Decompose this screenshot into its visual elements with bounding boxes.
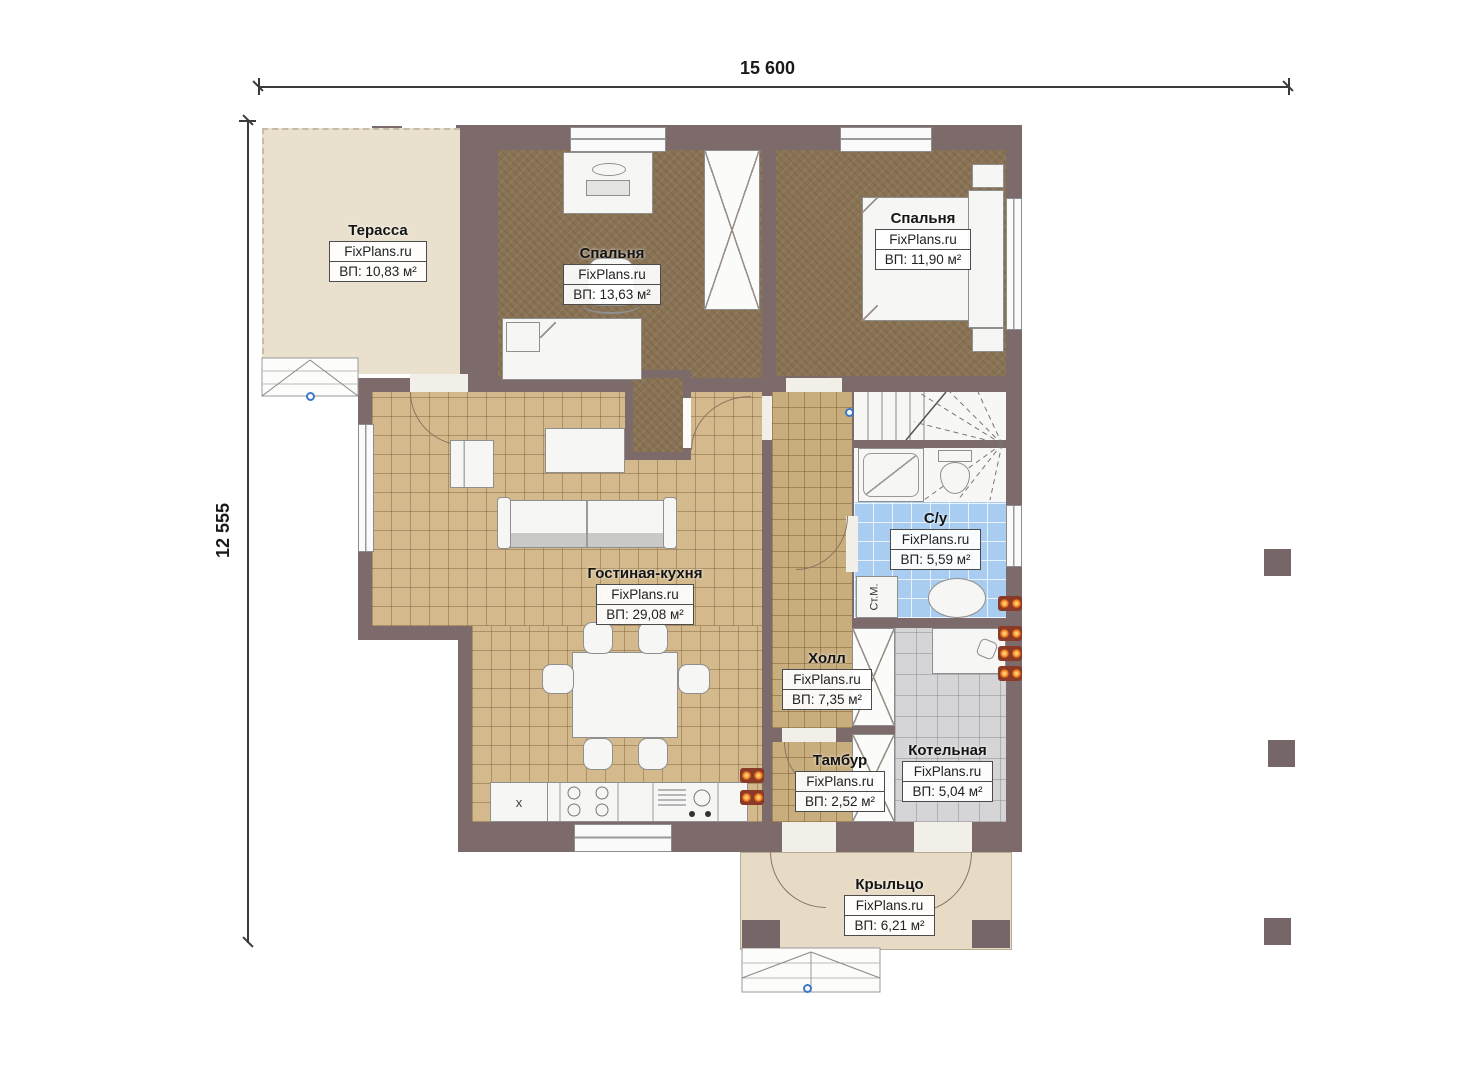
dining-chair	[542, 664, 574, 694]
room-area: ВП: 6,21 м²	[845, 915, 933, 935]
dining-chair	[583, 622, 613, 654]
radiator-icon	[998, 626, 1022, 641]
room-area: ВП: 10,83 м²	[330, 261, 426, 281]
pillow	[506, 322, 540, 352]
coffee-table	[545, 428, 625, 473]
room-name: С/у	[868, 510, 1003, 527]
sofa-armrest	[497, 497, 511, 549]
room-name: Спальня	[542, 245, 682, 262]
window	[574, 824, 672, 852]
watermark: FixPlans.ru	[796, 772, 884, 791]
washing-machine-label: Ст.М.	[869, 583, 881, 610]
room-name: Спальня	[853, 210, 993, 227]
room-name: Терасса	[308, 222, 448, 239]
watermark: FixPlans.ru	[564, 265, 660, 284]
blanket-fold	[862, 305, 878, 321]
room-label-terrace: Терасса FixPlans.ru ВП: 10,83 м²	[308, 222, 448, 282]
door-opening	[846, 516, 858, 572]
room-name: Крыльцо	[822, 876, 957, 893]
dimension-ext	[239, 120, 256, 122]
stove-and-sink	[490, 782, 748, 822]
dining-chair	[583, 738, 613, 770]
floor-plan: 15 600 12 555	[0, 0, 1474, 1080]
wardrobe-icon	[704, 150, 760, 310]
watermark: FixPlans.ru	[845, 896, 933, 915]
room-area: ВП: 5,04 м²	[903, 781, 991, 801]
radiator-icon	[998, 666, 1022, 681]
door-opening	[683, 398, 691, 448]
room-bedroom1-floor-ext	[633, 378, 683, 452]
door-opening	[914, 822, 972, 852]
desk-item	[586, 180, 630, 196]
nightstand	[972, 328, 1004, 352]
room-area: ВП: 5,59 м²	[891, 549, 979, 569]
room-label-bedroom1: Спальня FixPlans.ru ВП: 13,63 м²	[542, 245, 682, 305]
watermark: FixPlans.ru	[903, 762, 991, 781]
room-name: Гостиная-кухня	[565, 565, 725, 582]
room-label-boiler: Котельная FixPlans.ru ВП: 5,04 м²	[880, 742, 1015, 802]
shower-tray	[858, 448, 924, 502]
door-opening	[782, 728, 836, 742]
room-name: Холл	[762, 650, 892, 667]
nightstand	[972, 164, 1004, 188]
site-column	[1268, 740, 1295, 767]
room-label-bedroom2: Спальня FixPlans.ru ВП: 11,90 м²	[853, 210, 993, 270]
porch-column	[742, 920, 780, 948]
dimension-top-label: 15 600	[740, 58, 795, 79]
radiator-icon	[740, 768, 764, 783]
dining-chair	[678, 664, 710, 694]
dimension-ext	[258, 78, 260, 95]
window	[1006, 505, 1022, 567]
blanket-fold	[540, 322, 556, 338]
door-opening	[410, 374, 468, 392]
dimension-left-label: 12 555	[213, 503, 234, 558]
passage-opening	[762, 396, 772, 440]
watermark: FixPlans.ru	[597, 585, 693, 604]
room-label-bathroom: С/у FixPlans.ru ВП: 5,59 м²	[868, 510, 1003, 570]
room-area: ВП: 2,52 м²	[796, 791, 884, 811]
window	[840, 127, 932, 152]
room-area: ВП: 13,63 м²	[564, 284, 660, 304]
site-column	[1264, 549, 1291, 576]
dining-table	[572, 652, 678, 738]
survey-dot	[306, 392, 315, 401]
radiator-icon	[740, 790, 764, 805]
watermark: FixPlans.ru	[876, 230, 971, 249]
radiator-icon	[998, 646, 1022, 661]
sofa	[503, 500, 671, 548]
dining-chair	[638, 738, 668, 770]
room-area: ВП: 29,08 м²	[597, 604, 693, 624]
window	[358, 424, 374, 552]
dining-chair	[638, 622, 668, 654]
dimension-line-top	[258, 86, 1288, 88]
window	[1006, 198, 1022, 330]
door-opening	[786, 378, 842, 392]
room-label-hall: Холл FixPlans.ru ВП: 7,35 м²	[762, 650, 892, 710]
room-name: Котельная	[880, 742, 1015, 759]
washing-machine: Ст.М.	[856, 576, 898, 618]
window	[570, 127, 666, 152]
porch-column	[972, 920, 1010, 948]
room-area: ВП: 7,35 м²	[783, 689, 871, 709]
dimension-line-left	[247, 120, 249, 943]
survey-dot	[803, 984, 812, 993]
survey-dot	[845, 408, 854, 417]
side-table	[450, 440, 494, 488]
desk-lamp	[592, 163, 626, 176]
watermark: FixPlans.ru	[330, 242, 426, 261]
dimension-ext	[1288, 78, 1290, 95]
watermark: FixPlans.ru	[783, 670, 871, 689]
door-opening	[782, 822, 836, 852]
watermark: FixPlans.ru	[891, 530, 979, 549]
bathroom-sink	[928, 578, 986, 618]
room-label-porch: Крыльцо FixPlans.ru ВП: 6,21 м²	[822, 876, 957, 936]
sofa-armrest	[663, 497, 677, 549]
room-area: ВП: 11,90 м²	[876, 249, 971, 269]
site-column	[1264, 918, 1291, 945]
room-label-living: Гостиная-кухня FixPlans.ru ВП: 29,08 м²	[565, 565, 725, 625]
toilet-tank	[938, 450, 972, 462]
radiator-icon	[998, 596, 1022, 611]
